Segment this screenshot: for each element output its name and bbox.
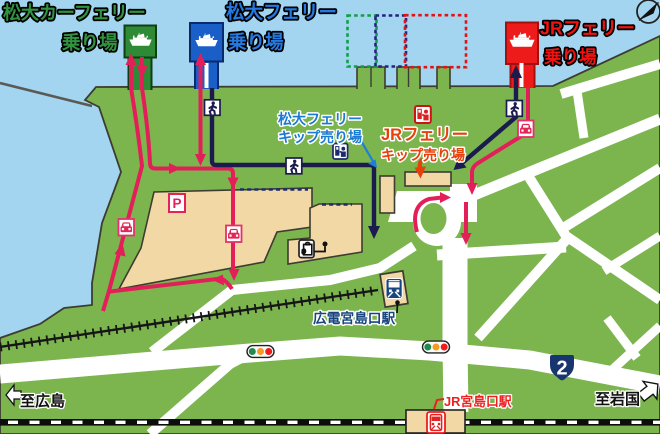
svg-text:松大フェリー: 松大フェリー bbox=[278, 111, 362, 127]
svg-text:JRフェリー: JRフェリー bbox=[540, 19, 635, 39]
svg-text:至広島: 至広島 bbox=[20, 392, 65, 410]
svg-text:乗り場: 乗り場 bbox=[228, 32, 284, 53]
svg-text:至岩国: 至岩国 bbox=[595, 390, 640, 408]
svg-text:広電宮島口駅: 広電宮島口駅 bbox=[313, 310, 395, 326]
svg-text:JRフェリー: JRフェリー bbox=[381, 126, 468, 144]
svg-text:P: P bbox=[172, 196, 181, 211]
svg-text:松大カーフェリー: 松大カーフェリー bbox=[3, 2, 146, 23]
svg-text:キップ売り場: キップ売り場 bbox=[278, 129, 362, 145]
svg-text:松大フェリー: 松大フェリー bbox=[226, 2, 337, 23]
svg-text:2: 2 bbox=[556, 358, 567, 380]
svg-text:乗り場: 乗り場 bbox=[62, 32, 118, 53]
svg-text:JR宮島口駅: JR宮島口駅 bbox=[444, 394, 512, 409]
svg-text:乗り場: 乗り場 bbox=[543, 47, 597, 67]
svg-text:キップ売り場: キップ売り場 bbox=[381, 147, 465, 163]
